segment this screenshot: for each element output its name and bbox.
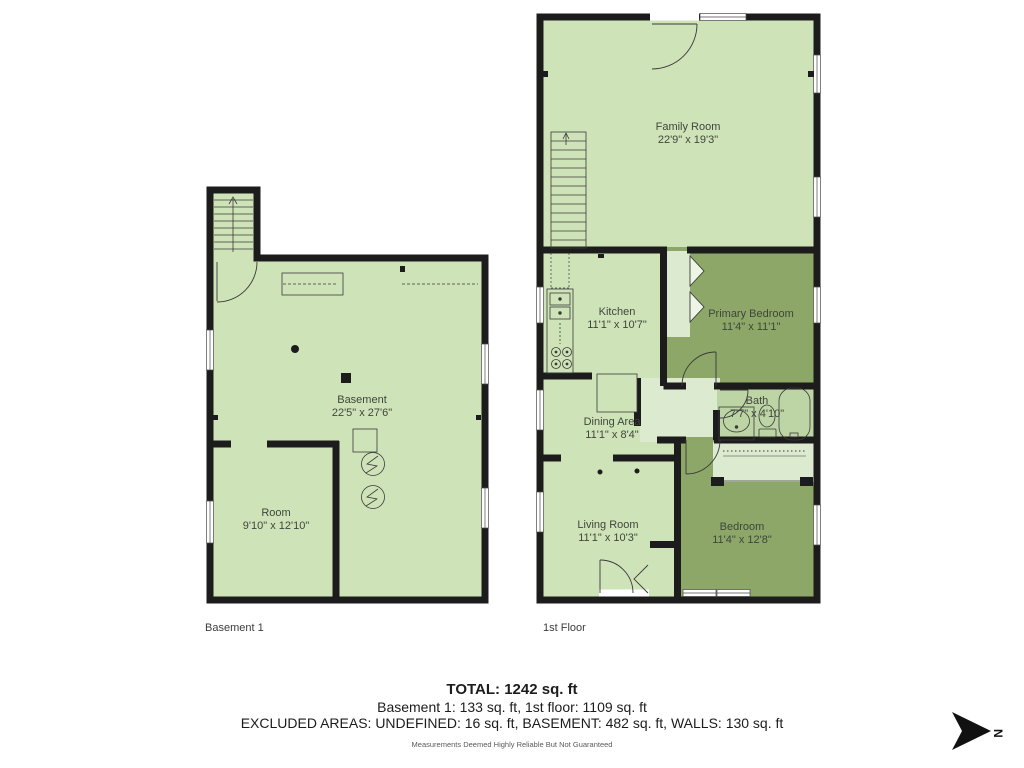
- floor-label-first-floor: 1st Floor: [543, 622, 586, 634]
- room-dims: 11'1" x 10'7": [587, 319, 647, 332]
- room-dims: 11'4" x 12'8": [712, 534, 772, 547]
- column-marker: [291, 345, 299, 353]
- room-label-basement: Basement 22'5" x 27'6": [332, 394, 392, 420]
- first-floor-plan: [537, 14, 821, 601]
- primary-closet-fill: [667, 251, 690, 337]
- room-name: Dining Area: [584, 416, 641, 429]
- room-name: Room: [243, 507, 309, 520]
- room-dims: 7'7" x 4'10": [730, 408, 784, 421]
- wall-tick: [400, 266, 405, 272]
- wall-tick: [476, 415, 481, 420]
- wall-tick: [543, 71, 548, 77]
- door-opening: [650, 14, 699, 21]
- room-label-bath: Bath 7'7" x 4'10": [730, 395, 784, 421]
- room-dims: 22'9" x 19'3": [656, 134, 721, 147]
- wall-tick: [598, 254, 604, 258]
- area-summary: TOTAL: 1242 sq. ft Basement 1: 133 sq. f…: [0, 681, 1024, 749]
- room-dims: 9'10" x 12'10": [243, 520, 309, 533]
- room-dims: 22'5" x 27'6": [332, 407, 392, 420]
- entry-closet-wall: [650, 541, 677, 548]
- room-label-kitchen: Kitchen 11'1" x 10'7": [587, 306, 647, 332]
- room-dims: 11'1" x 8'4": [584, 429, 641, 442]
- room-label-room: Room 9'10" x 12'10": [243, 507, 309, 533]
- post-marker: [635, 469, 640, 474]
- room-label-living-room: Living Room 11'1" x 10'3": [577, 519, 638, 545]
- floorplan-graphics: N: [0, 0, 1024, 768]
- wall-tick: [213, 415, 218, 420]
- closet-wall-stub: [800, 477, 813, 486]
- room-name: Living Room: [577, 519, 638, 532]
- room-name: Primary Bedroom: [708, 308, 794, 321]
- room-name: Kitchen: [587, 306, 647, 319]
- dining-table-icon: [597, 374, 637, 412]
- disclaimer-text: Measurements Deemed Highly Reliable But …: [0, 740, 1024, 749]
- floor-areas: Basement 1: 133 sq. ft, 1st floor: 1109 …: [0, 699, 1024, 715]
- door-opening: [599, 590, 649, 597]
- room-name: Bedroom: [712, 521, 772, 534]
- bedroom-closet-fill: [713, 442, 817, 482]
- room-name: Bath: [730, 395, 784, 408]
- room-dims: 11'4" x 11'1": [708, 321, 794, 334]
- room-label-family-room: Family Room 22'9" x 19'3": [656, 121, 721, 147]
- room-label-dining-area: Dining Area 11'1" x 8'4": [584, 416, 641, 442]
- wall-tick: [808, 71, 814, 77]
- room-dims: 11'1" x 10'3": [577, 532, 638, 545]
- total-area: TOTAL: 1242 sq. ft: [0, 681, 1024, 699]
- floor-label-basement: Basement 1: [205, 622, 264, 634]
- room-name: Basement: [332, 394, 392, 407]
- room-label-bedroom: Bedroom 11'4" x 12'8": [712, 521, 772, 547]
- floorplan-page: N Basement 22'5" x 27'6" Room 9'10" x 12…: [0, 0, 1024, 768]
- room-name: Family Room: [656, 121, 721, 134]
- post-marker: [341, 373, 351, 383]
- post-marker: [598, 470, 603, 475]
- closet-wall-stub: [711, 477, 724, 486]
- excluded-areas: EXCLUDED AREAS: UNDEFINED: 16 sq. ft, BA…: [0, 715, 1024, 731]
- room-label-primary-bedroom: Primary Bedroom 11'4" x 11'1": [708, 308, 794, 334]
